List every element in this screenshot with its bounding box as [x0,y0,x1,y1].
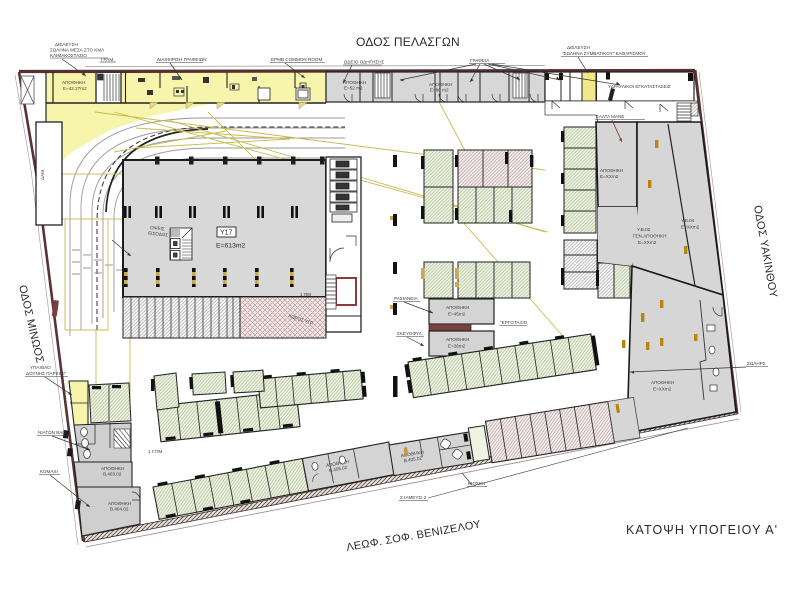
svg-text:ΓΡΑΜ.: ΓΡΑΜ. [101,57,114,62]
svg-text:ΓΡΑΦΕΙΑ: ΓΡΑΦΕΙΑ [470,58,490,63]
svg-text:ΑΠΟΘΗΚΗ: ΑΠΟΘΗΚΗ [62,80,85,85]
svg-text:ΑΠΟΘΗΚΗ: ΑΠΟΘΗΚΗ [651,380,674,385]
svg-text:1 Γ.ΠΜ: 1 Γ.ΠΜ [148,449,162,454]
svg-text:ΚΛΙΜΑΚΟΣΤΑΣΙΟ: ΚΛΙΜΑΚΟΣΤΑΣΙΟ [50,53,87,58]
svg-text:"ΕΡΓΟΤΑΞΙΟ: "ΕΡΓΟΤΑΞΙΟ [500,320,528,325]
svg-text:ΡΑΣΙΑΝΕΙΑ: ΡΑΣΙΑΝΕΙΑ [394,296,419,301]
svg-text:ΑΠΟΘΗΚΗ: ΑΠΟΘΗΚΗ [446,337,469,342]
svg-text:ΣΚΕΥΟΦΥΛ.: ΣΚΕΥΟΦΥΛ. [397,331,423,336]
svg-text:ΑΠΟΘΗΚΗ: ΑΠΟΘΗΚΗ [429,82,452,87]
svg-text:Ε=80 m2: Ε=80 m2 [430,88,449,93]
svg-text:1 ΠΜ: 1 ΠΜ [300,292,311,297]
svg-text:Υ.Β.02: Υ.Β.02 [637,227,651,232]
svg-text:ΚΟΜΑΧΙ: ΚΟΜΑΧΙ [40,469,58,474]
svg-text:Ε=42.27m2: Ε=42.27m2 [63,86,87,91]
svg-text:ΑΠΟΘΗΚΗ: ΑΠΟΘΗΚΗ [446,305,469,310]
svg-text:Υ.Β.04: Υ.Β.04 [681,218,695,223]
svg-text:Β.403.02: Β.403.02 [103,472,122,477]
svg-text:ΑΠΟΘΗΚΗ: ΑΠΟΘΗΚΗ [600,168,623,173]
svg-text:ΩΔΕΙΟ ΟΔΗΓΗΣΗΣ: ΩΔΕΙΟ ΟΔΗΓΗΣΗΣ [344,60,385,65]
svg-text:ΣΑΛΤΑ ΜΑΝΕ: ΣΑΛΤΑ ΜΑΝΕ [596,114,624,119]
svg-text:ΑΠΟΘΗΚΗ: ΑΠΟΘΗΚΗ [343,80,366,85]
svg-text:Ε=45m2: Ε=45m2 [448,312,466,317]
svg-text:ΔΙΕΛΕΥΣΗ: ΔΙΕΛΕΥΣΗ [567,45,590,50]
svg-text:Ε=ΧΧm2: Ε=ΧΧm2 [653,387,672,392]
svg-text:Ε=52 m2: Ε=52 m2 [344,86,363,91]
svg-text:Ε=26m2: Ε=26m2 [448,344,466,349]
svg-text:E=613m2: E=613m2 [216,243,246,250]
svg-text:Ε=ΧΧm2: Ε=ΧΧm2 [600,174,619,179]
svg-text:ΚΑΤΟΨΗ ΥΠΟΓΕΙΟΥ Α': ΚΑΤΟΨΗ ΥΠΟΓΕΙΟΥ Α' [626,523,778,537]
svg-text:Y17: Y17 [220,230,233,237]
svg-text:Σ.ΙΑΜΕΥΣΙ.2: Σ.ΙΑΜΕΥΣΙ.2 [400,495,427,500]
svg-text:ΓΕΝ.ΑΠΟΘΗΚΗ: ΓΕΝ.ΑΠΟΘΗΚΗ [633,234,666,239]
svg-text:ΟΔΟΣ ΠΕΛΑΣΓΩΝ: ΟΔΟΣ ΠΕΛΑΣΓΩΝ [356,35,460,49]
svg-text:ΥΔΡΑΥΛΙΚΟΙ ΕΓΚΑΤΑΣΤΑΣΕΙΣ: ΥΔΡΑΥΛΙΚΟΙ ΕΓΚΑΤΑΣΤΑΣΕΙΣ [608,84,671,89]
svg-text:ΔΙΕΛΕΥΣΗ: ΔΙΕΛΕΥΣΗ [55,42,78,47]
svg-text:ΣΩΛΗΡΣ: ΣΩΛΗΡΣ [747,361,766,366]
svg-text:Ε=ΧΧm2: Ε=ΧΧm2 [681,225,700,230]
svg-text:"ΣΩΛΗΝΑ ΣΥΜΒΑΤΙΚΟΥ" ΚΑΘΑΡΙΣΜΟ: "ΣΩΛΗΝΑ ΣΥΜΒΑΤΙΚΟΥ" ΚΑΘΑΡΙΣΜΟΥ [562,51,646,56]
svg-text:ΕΡΜΒ COMMON ROOM: ΕΡΜΒ COMMON ROOM [271,57,322,62]
svg-text:ΑΠΟΘΗΚΗ: ΑΠΟΘΗΚΗ [101,466,124,471]
svg-text:ΝΙΑΓΩΝ ΒΑΘ.: ΝΙΑΓΩΝ ΒΑΘ. [38,430,67,435]
svg-text:ΔΟΥΝΗΣ ΠΑΡΚΙΝΓ: ΔΟΥΝΗΣ ΠΑΡΚΙΝΓ [26,371,66,376]
svg-text:ΔΙΑΧΕΙΡΙΣΗ ΓΡΑΦΕΙΩΝ: ΔΙΑΧΕΙΡΙΣΗ ΓΡΑΦΕΙΩΝ [157,57,207,62]
svg-text:ΥΠΑΙΘΛΟ: ΥΠΑΙΘΛΟ [30,365,51,370]
svg-text:ΑΠΟΘΗΚΗ: ΑΠΟΘΗΚΗ [108,501,131,506]
svg-text:ΣΩΛΗΝΑ ΜΕΣΑ ΣΤΟ ΚΜΛ: ΣΩΛΗΝΑ ΜΕΣΑ ΣΤΟ ΚΜΛ [50,48,105,53]
svg-text:ΔΑΜ: ΔΑΜ [40,170,45,180]
svg-text:Ε=ΧΧm2: Ε=ΧΧm2 [638,240,657,245]
svg-text:Β.404.02: Β.404.02 [110,507,129,512]
